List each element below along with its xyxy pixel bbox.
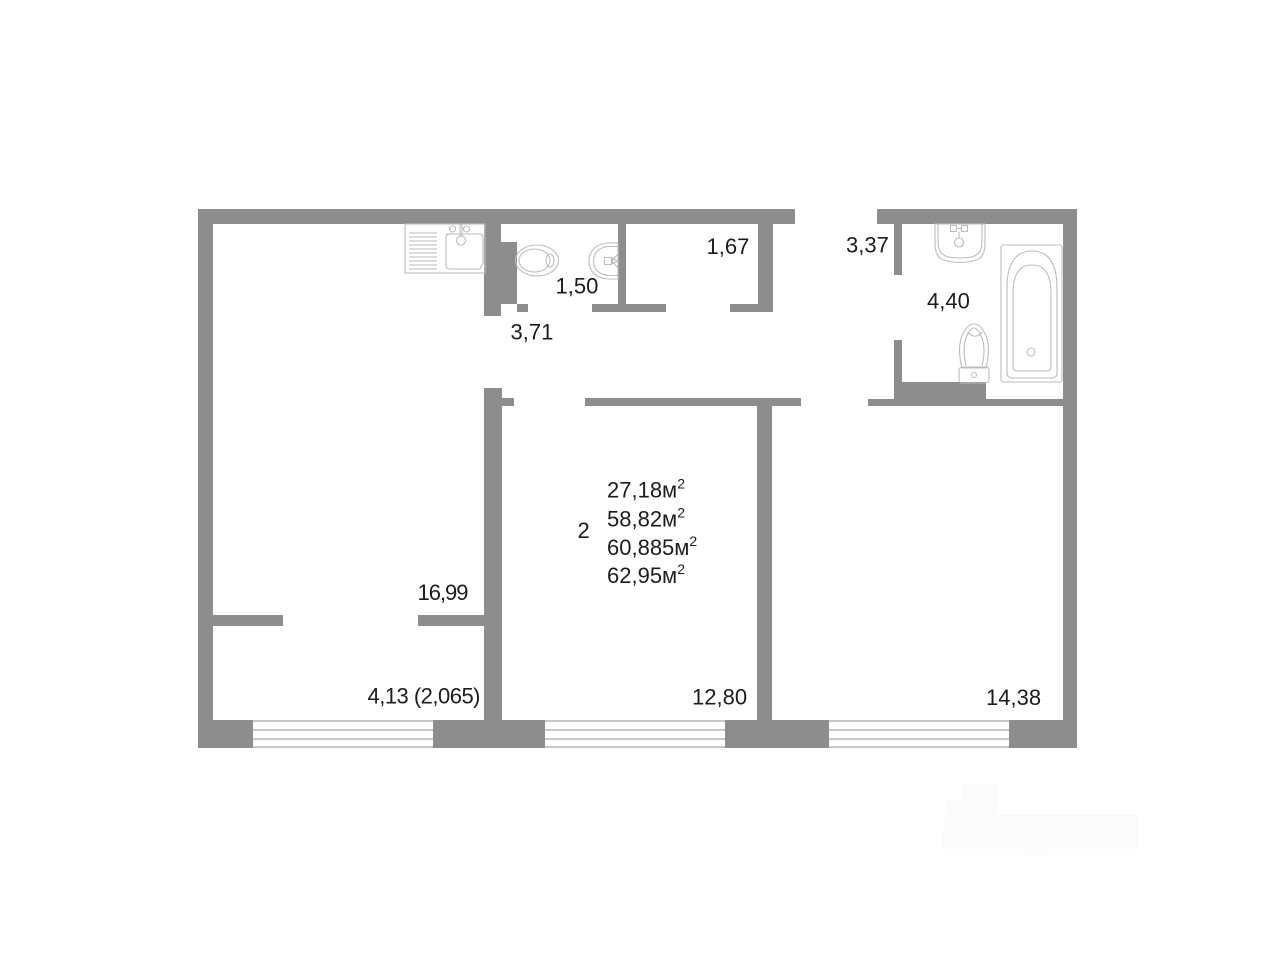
svg-text:16,99: 16,99 — [418, 580, 469, 605]
svg-text:4,40: 4,40 — [927, 289, 970, 314]
svg-text:12,80: 12,80 — [692, 685, 747, 710]
svg-text:1,50: 1,50 — [556, 274, 599, 299]
svg-text:27,18м2: 27,18м2 — [607, 476, 685, 503]
svg-text:58,82м2: 58,82м2 — [607, 505, 685, 532]
svg-text:3,37: 3,37 — [846, 233, 889, 258]
svg-text:2: 2 — [578, 518, 590, 543]
svg-text:1,67: 1,67 — [707, 234, 750, 259]
svg-text:3,71: 3,71 — [511, 320, 554, 345]
svg-text:60,885м2: 60,885м2 — [607, 533, 697, 560]
svg-text:14,38: 14,38 — [986, 685, 1041, 710]
svg-text:62,95м2: 62,95м2 — [607, 561, 685, 588]
svg-text:4,13 (2,065): 4,13 (2,065) — [368, 684, 481, 709]
